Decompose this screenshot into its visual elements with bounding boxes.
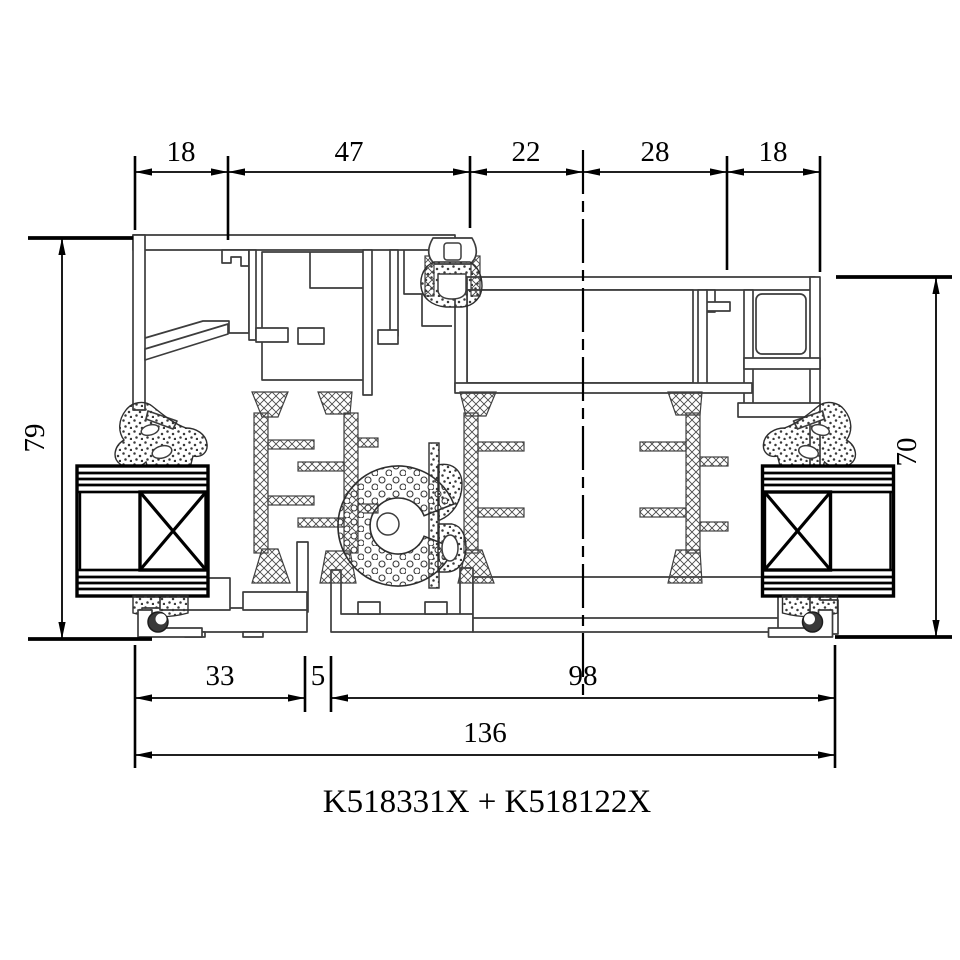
top-center-bulb-gasket — [421, 238, 482, 307]
dim-top-18a: 18 — [167, 136, 196, 168]
dim-bottom-33: 33 — [206, 660, 235, 692]
technical-drawing-page: 18 47 22 28 18 79 70 33 5 98 — [0, 0, 960, 960]
profile-cross-section-drawing: 18 47 22 28 18 79 70 33 5 98 — [0, 0, 960, 960]
dim-bottom-98: 98 — [569, 660, 598, 692]
dim-top-47: 47 — [335, 136, 364, 168]
dim-total-136: 136 — [463, 717, 507, 749]
dim-right-70: 70 — [891, 438, 923, 467]
center-gasket — [338, 464, 466, 586]
article-code-label: K518331X + K518122X — [323, 784, 652, 820]
thermal-break-struts — [252, 392, 728, 583]
dim-top-22: 22 — [512, 136, 541, 168]
dimension-bottom: 33 5 98 136 — [135, 645, 835, 768]
dim-top-18b: 18 — [759, 136, 788, 168]
dim-bottom-5: 5 — [311, 660, 326, 692]
hardware-left — [77, 403, 208, 637]
hardware-right — [763, 403, 894, 637]
dim-top-28: 28 — [641, 136, 670, 168]
dim-left-79: 79 — [19, 424, 51, 453]
